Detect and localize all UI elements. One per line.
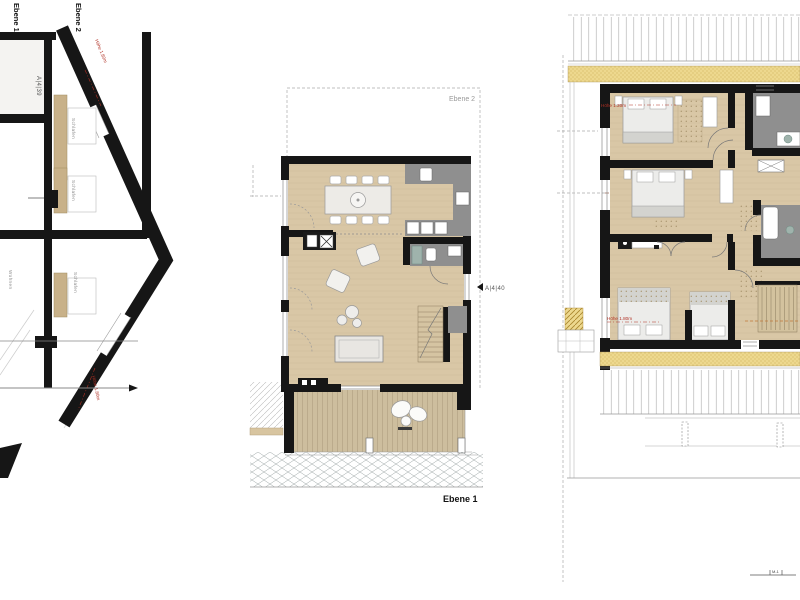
staircase [418, 306, 443, 362]
insulation-strip-top [568, 66, 800, 82]
dining-table [325, 186, 391, 214]
eave-insulation-block [565, 308, 583, 330]
overlay-level-label: Ebene 2 [449, 96, 475, 103]
closet [448, 306, 467, 333]
section-fixture-symbols [28, 190, 58, 208]
ground-hatch [250, 452, 483, 487]
section-room-label: Schlafen [71, 180, 76, 201]
coffee-table [335, 336, 383, 362]
section-cut-label: A|4|40 [485, 286, 505, 292]
height-label-top: Höhe 1.80m [94, 39, 108, 64]
section-level2-label: Ebene 2 [74, 3, 83, 32]
neighbor-strip [250, 428, 283, 435]
section-marker-label: A|4|39 [35, 76, 41, 96]
neighbor-hatch [250, 382, 283, 428]
floor-plan-level1: Ebene 2 [240, 0, 510, 600]
scale-mark: M-1 [750, 569, 796, 575]
plan1-caption: Ebene 1 [443, 494, 478, 504]
roof-overhang-bottom [567, 352, 800, 478]
roof-edge-left [570, 82, 574, 478]
terrace-deck [293, 390, 465, 452]
bathroom-2 [761, 205, 800, 260]
roof-overhang-top [568, 15, 800, 64]
architectural-drawing-sheet: Ebene 1 Ebene 2 A|4|39 [0, 0, 800, 600]
section-cut-marker: A|4|40 [477, 283, 505, 292]
bathroom-1 [753, 93, 800, 148]
height-label-120: Höhe 1.20m [601, 103, 626, 108]
section-level1-label: Ebene 1 [12, 3, 21, 32]
bed-4 [690, 292, 730, 340]
section-room-label: Wohnen [8, 270, 13, 289]
scale-mark-label: M-1 [772, 569, 780, 574]
wardrobe-bedroom1 [703, 97, 717, 127]
bed-3 [618, 288, 670, 340]
window-elevation-detail [558, 330, 594, 352]
washer-symbol [758, 160, 784, 172]
section-room-label: Schlafen [71, 118, 76, 139]
section-datum-arrow [0, 385, 138, 392]
floor-plan-level2: Höhe 1.20m Höhe 1.80m M-1 [555, 0, 800, 600]
cross-section-drawing: Ebene 1 Ebene 2 A|4|39 [0, 0, 215, 600]
section-room-label: Schlafen [73, 272, 78, 293]
terrace-label-smudge [398, 427, 412, 430]
height-label-180: Höhe 1.80m [607, 316, 632, 321]
cooktop-island [303, 232, 336, 250]
